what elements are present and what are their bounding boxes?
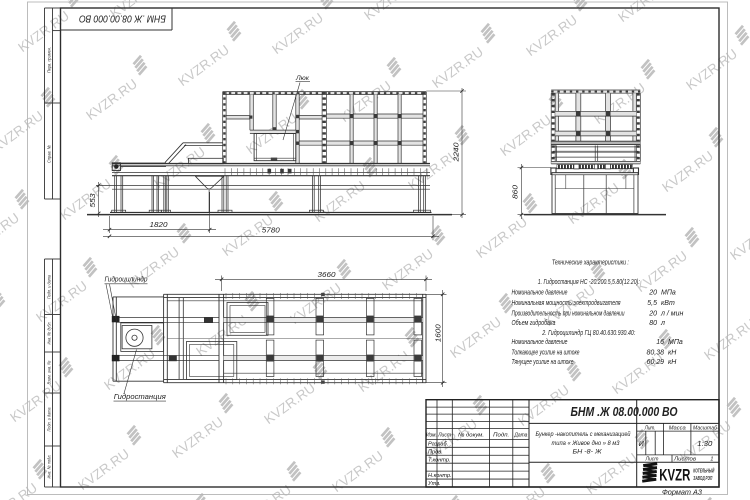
- svg-text:Подп.: Подп.: [493, 433, 509, 439]
- svg-text:KVZR.RU: KVZR.RU: [497, 112, 554, 159]
- svg-text:типа « Живое дно » 8 м3: типа « Живое дно » 8 м3: [552, 439, 620, 447]
- svg-text:KVZR.RU: KVZR.RU: [727, 216, 750, 263]
- svg-text:KVZR: KVZR: [659, 466, 690, 484]
- svg-text:80: 80: [649, 320, 657, 327]
- svg-text:БН -8- Ж: БН -8- Ж: [573, 448, 603, 455]
- svg-text:KVZR.RU: KVZR.RU: [429, 44, 486, 91]
- svg-text:Бункер -накопитель с механизац: Бункер -накопитель с механизацией: [536, 430, 631, 438]
- svg-text:KVZR.RU: KVZR.RU: [473, 214, 530, 261]
- svg-text:Листов: Листов: [673, 457, 696, 463]
- svg-text:БНМ .Ж 08.00.000 ВО: БНМ .Ж 08.00.000 ВО: [571, 404, 678, 419]
- svg-text:5,5: 5,5: [647, 300, 657, 307]
- svg-text:Тянущее усилие на штоке: Тянущее усилие на штоке: [512, 359, 574, 366]
- svg-text:Толкающее усилие на штоке: Толкающее усилие на штоке: [512, 350, 580, 357]
- svg-text:20: 20: [648, 310, 657, 317]
- svg-text:Гидростанция: Гидростанция: [114, 392, 166, 401]
- svg-text:Справ. №: Справ. №: [47, 145, 53, 163]
- svg-text:KVZR.RU: KVZR.RU: [75, 446, 132, 493]
- svg-text:KVZR.RU: KVZR.RU: [7, 378, 64, 425]
- svg-text:KVZR.RU: KVZR.RU: [591, 80, 648, 127]
- svg-text:Номинальное давление: Номинальное давление: [512, 289, 568, 297]
- svg-text:кН: кН: [668, 350, 677, 357]
- svg-text:KVZR.RU: KVZR.RU: [447, 314, 504, 361]
- svg-text:Перв. примен.: Перв. примен.: [47, 47, 53, 73]
- svg-text:KVZR.RU: KVZR.RU: [83, 76, 140, 123]
- svg-text:Масса: Масса: [669, 425, 687, 431]
- svg-text:KVZR.RU: KVZR.RU: [355, 348, 412, 395]
- svg-text:Гидроцилиндр: Гидроцилиндр: [105, 275, 148, 284]
- svg-text:5780: 5780: [262, 228, 280, 235]
- svg-text:Т.контр.: Т.контр.: [428, 457, 451, 463]
- svg-text:1600: 1600: [436, 324, 443, 342]
- svg-text:KVZR.RU: KVZR.RU: [683, 46, 740, 93]
- svg-text:KVZR.RU: KVZR.RU: [615, 0, 672, 25]
- svg-text:80,38: 80,38: [646, 350, 664, 357]
- svg-text:Люк: Люк: [295, 75, 310, 82]
- svg-text:KVZR.RU: KVZR.RU: [633, 248, 690, 295]
- svg-text:Пров.: Пров.: [428, 449, 443, 455]
- svg-text:Разраб.: Разраб.: [428, 442, 448, 448]
- svg-text:2. Гидроцилиндр ГЦ 80.40.630: 2. Гидроцилиндр ГЦ 80.40.630.930.40:: [542, 329, 636, 337]
- svg-text:Н.контр.: Н.контр.: [428, 473, 452, 479]
- svg-text:KVZR.RU: KVZR.RU: [33, 278, 90, 325]
- svg-text:60,29: 60,29: [646, 359, 664, 366]
- svg-text:KVZR.RU: KVZR.RU: [15, 8, 72, 55]
- svg-text:Утв.: Утв.: [427, 481, 441, 487]
- svg-text:KVZR.RU: KVZR.RU: [361, 0, 418, 23]
- svg-text:Дата: Дата: [514, 433, 528, 439]
- svg-text:Подп. и дата: Подп. и дата: [47, 407, 53, 431]
- svg-text:KVZR.RU: KVZR.RU: [261, 380, 318, 427]
- svg-text:1820: 1820: [150, 222, 168, 229]
- svg-text:Номинальное давление: Номинальное давление: [512, 338, 568, 346]
- svg-text:кВт: кВт: [661, 300, 675, 307]
- svg-text:2240: 2240: [454, 142, 461, 162]
- svg-text:KVZR.RU: KVZR.RU: [583, 450, 640, 497]
- svg-text:1: 1: [710, 457, 713, 463]
- svg-text:Лист: Лист: [437, 433, 451, 439]
- svg-text:KVZR.RU: KVZR.RU: [0, 210, 22, 257]
- svg-text:KVZR.RU: KVZR.RU: [175, 42, 232, 89]
- svg-text:1. Гидростанция НС -20.200.5: 1. Гидростанция НС -20.200.5,5.80(12.20)…: [538, 278, 640, 286]
- svg-text:л / мин: л / мин: [660, 310, 683, 317]
- svg-text:Инв. № подл.: Инв. № подл.: [47, 455, 53, 479]
- svg-text:Лит.: Лит.: [644, 425, 656, 431]
- svg-text:860: 860: [513, 185, 520, 199]
- svg-text:Подп. и дата: Подп. и дата: [47, 275, 53, 299]
- svg-text:KVZR.RU: KVZR.RU: [57, 176, 114, 223]
- svg-text:Объем гидробака: Объем гидробака: [512, 319, 556, 327]
- svg-text:KVZR.RU: KVZR.RU: [659, 148, 716, 195]
- svg-text:Масштаб: Масштаб: [693, 425, 718, 431]
- svg-text:16: 16: [656, 339, 664, 346]
- svg-text:1:30: 1:30: [697, 439, 713, 448]
- svg-text:Лист: Лист: [645, 457, 659, 463]
- svg-text:Взам. инв. №: Взам. инв. №: [47, 361, 53, 385]
- svg-text:Технические характеристики :: Технические характеристики :: [552, 257, 629, 266]
- svg-text:МПа: МПа: [661, 290, 676, 297]
- svg-text:3660: 3660: [318, 272, 336, 279]
- svg-text:KVZR.RU: KVZR.RU: [609, 350, 666, 397]
- svg-text:KVZR.RU: KVZR.RU: [379, 246, 436, 293]
- svg-text:20: 20: [648, 290, 657, 297]
- svg-text:Формат А3: Формат А3: [662, 487, 702, 496]
- svg-text:KVZR.RU: KVZR.RU: [169, 414, 226, 461]
- svg-text:Инв. № дубл.: Инв. № дубл.: [47, 322, 53, 345]
- svg-text:БНМ .Ж 08.00.000 ВО: БНМ .Ж 08.00.000 ВО: [79, 13, 166, 24]
- svg-text:№ докум.: № докум.: [458, 433, 484, 439]
- svg-text:л: л: [660, 320, 665, 327]
- svg-text:KVZR.RU: KVZR.RU: [0, 480, 40, 500]
- svg-text:Изм.: Изм.: [426, 433, 437, 439]
- svg-text:Номинальная мощность электродв: Номинальная мощность электродвигателя: [512, 299, 621, 307]
- svg-text:KVZR.RU: KVZR.RU: [269, 10, 326, 57]
- svg-text:KVZR.RU: KVZR.RU: [101, 346, 158, 393]
- svg-text:KVZR.RU: KVZR.RU: [0, 108, 46, 155]
- svg-text:KVZR.RU: KVZR.RU: [745, 486, 750, 500]
- svg-text:KVZR.RU: KVZR.RU: [701, 316, 750, 363]
- svg-text:кН: кН: [668, 359, 677, 366]
- svg-text:KVZR.RU: KVZR.RU: [237, 482, 294, 500]
- svg-text:KVZR.RU: KVZR.RU: [329, 448, 386, 495]
- svg-text:KVZR.RU: KVZR.RU: [219, 212, 276, 259]
- svg-text:KVZR.RU: KVZR.RU: [515, 382, 572, 429]
- svg-text:КОТЕЛЬНЫЙ: КОТЕЛЬНЫЙ: [693, 467, 714, 475]
- svg-text:Производительность при номинал: Производительность при номинальном давле…: [512, 309, 625, 317]
- svg-text:KVZR.RU: KVZR.RU: [523, 12, 580, 59]
- svg-text:553: 553: [90, 193, 97, 207]
- svg-text:МПа: МПа: [668, 339, 683, 346]
- svg-text:ЗАВОД РЭП: ЗАВОД РЭП: [693, 476, 712, 482]
- svg-text:KVZR.RU: KVZR.RU: [565, 180, 622, 227]
